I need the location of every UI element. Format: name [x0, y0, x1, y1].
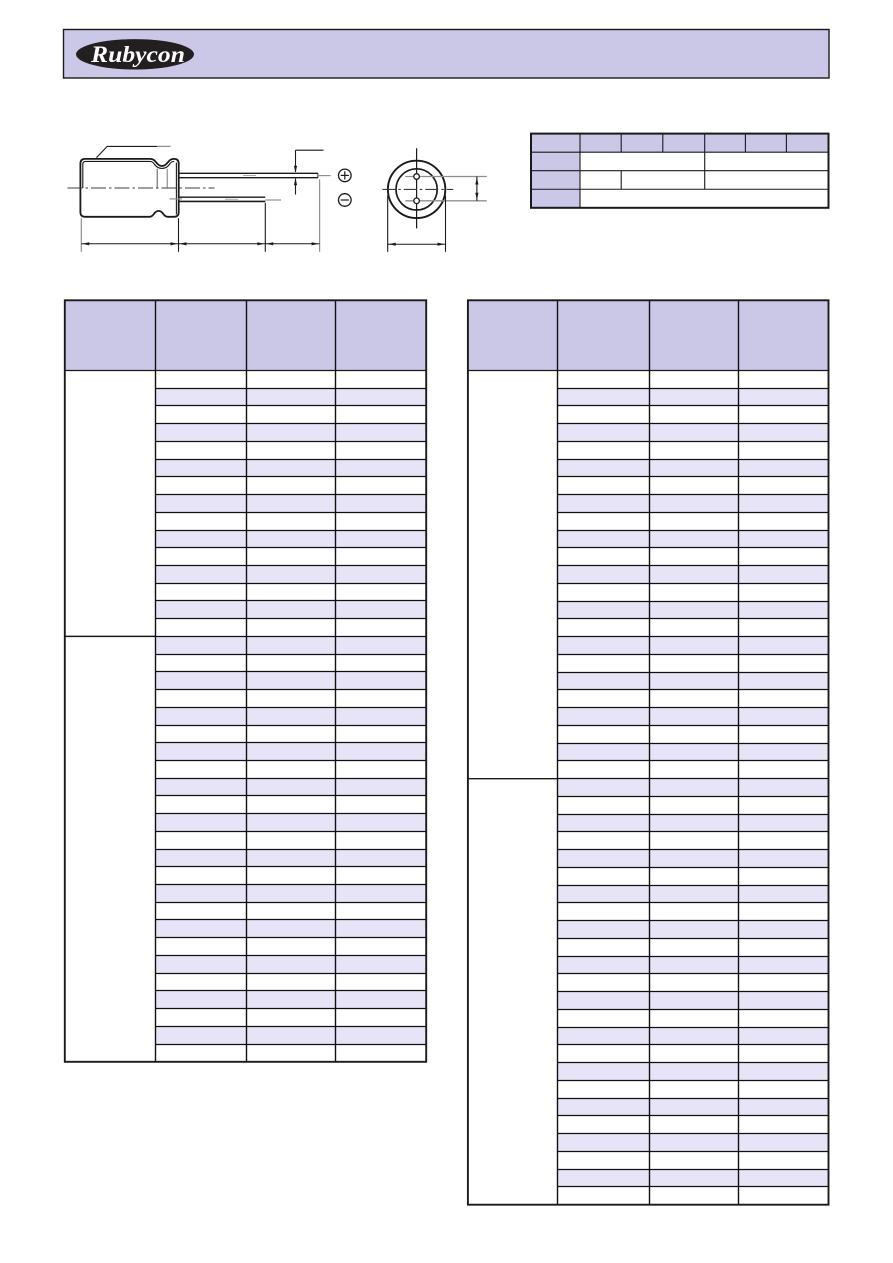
- svg-text:Rubycon: Rubycon: [90, 42, 185, 67]
